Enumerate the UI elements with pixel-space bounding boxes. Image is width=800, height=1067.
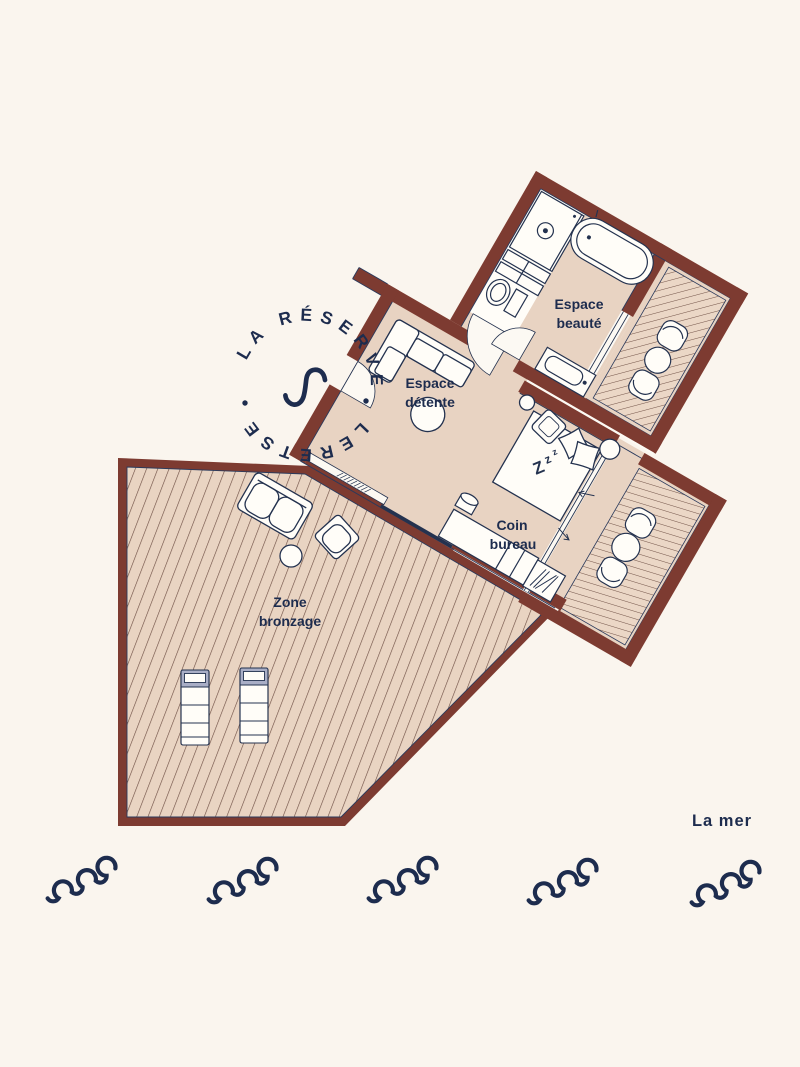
svg-text:Zone: Zone [273, 594, 307, 610]
svg-text:beauté: beauté [556, 315, 601, 331]
svg-text:détente: détente [405, 394, 455, 410]
svg-text:Espace: Espace [405, 375, 454, 391]
svg-text:bronzage: bronzage [259, 613, 321, 629]
svg-text:La mer: La mer [692, 812, 752, 830]
svg-text:Espace: Espace [554, 296, 603, 312]
svg-text:Coin: Coin [496, 517, 527, 533]
svg-text:bureau: bureau [490, 536, 537, 552]
